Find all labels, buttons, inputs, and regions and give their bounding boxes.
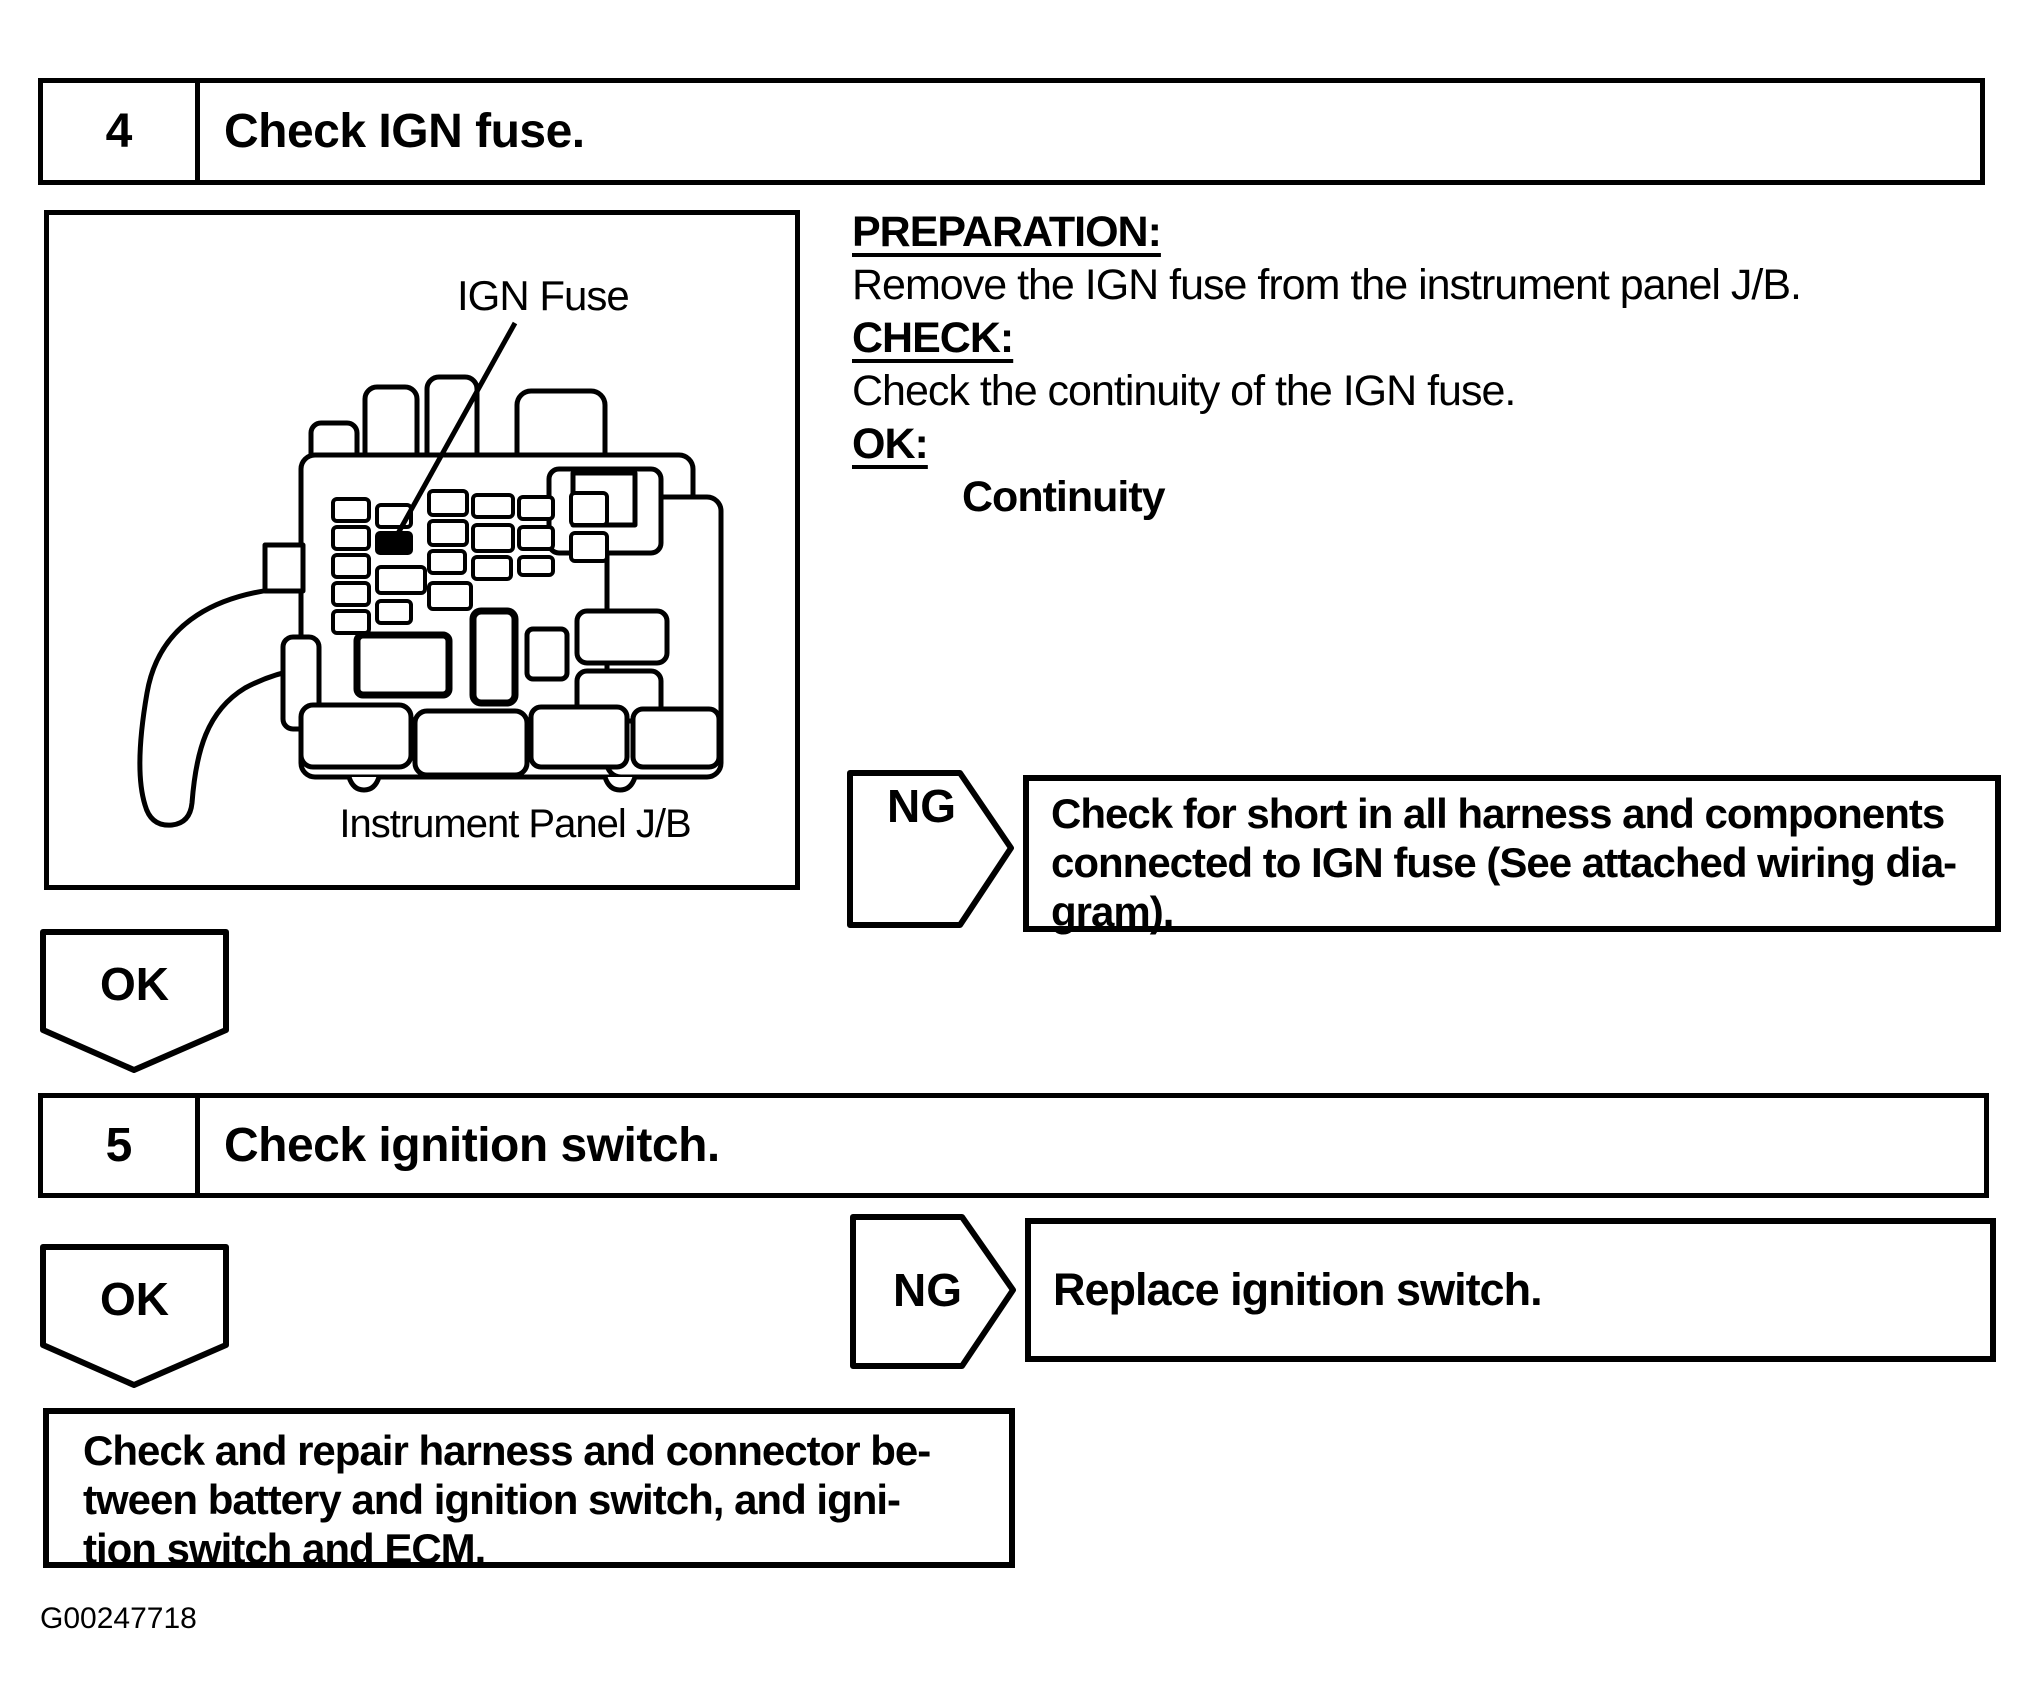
final-result-line: Check and repair harness and connector b… (83, 1426, 999, 1475)
step5-ok-arrow: OK (40, 1243, 230, 1389)
illustration-caption: Instrument Panel J/B (339, 802, 690, 846)
final-result-line: tion switch and ECM. (83, 1524, 999, 1573)
step4-ng-result-box: Check for short in all harness and compo… (1023, 775, 2001, 932)
side-lug (265, 545, 303, 591)
mount-foot (349, 777, 379, 790)
ok-condition-text: Continuity (962, 471, 2002, 524)
figure-id: G00247718 (40, 1602, 197, 1636)
step5-number: 5 (43, 1098, 200, 1193)
preparation-heading: PREPARATION: (852, 206, 2002, 259)
ng-result-line: Check for short in all harness and compo… (1051, 789, 1981, 838)
ng-result-text: Replace ignition switch. (1053, 1264, 1542, 1316)
ok-label: OK (100, 958, 169, 1010)
relay-block (473, 611, 515, 703)
check-text: Check the continuity of the IGN fuse. (852, 365, 2002, 418)
step5-title: Check ignition switch. (200, 1098, 720, 1193)
step4-number: 4 (43, 83, 200, 180)
harness-arm (140, 587, 301, 825)
final-result-line: tween battery and ignition switch, and i… (83, 1475, 999, 1524)
relay-block (357, 635, 449, 695)
step4-instructions: PREPARATION: Remove the IGN fuse from th… (852, 206, 2002, 524)
ign-fuse-highlight (377, 533, 411, 553)
step5-ng-arrow: NG (850, 1214, 1020, 1369)
service-manual-page: 4 Check IGN fuse. (0, 0, 2031, 1706)
junction-block-drawing: IGN Fuse Instrument Panel J/B (49, 215, 795, 885)
ok-label: OK (100, 1273, 169, 1325)
ign-fuse-label: IGN Fuse (457, 272, 629, 319)
final-result-box: Check and repair harness and connector b… (43, 1408, 1015, 1568)
ng-result-line: connected to IGN fuse (See attached wiri… (1051, 838, 1981, 887)
mount-foot (605, 777, 635, 790)
ng-label: NG (887, 780, 956, 832)
ng-label: NG (893, 1264, 962, 1316)
instrument-panel-illustration-box: IGN Fuse Instrument Panel J/B (44, 210, 800, 890)
ok-heading: OK: (852, 418, 2002, 471)
step4-header: 4 Check IGN fuse. (38, 78, 1985, 185)
step4-ng-arrow: NG (847, 770, 1017, 928)
step5-ng-result-box: Replace ignition switch. (1025, 1218, 1996, 1362)
ng-result-line: gram). (1051, 887, 1981, 936)
step4-title: Check IGN fuse. (200, 83, 585, 180)
step4-ok-arrow: OK (40, 928, 230, 1074)
check-heading: CHECK: (852, 312, 2002, 365)
step5-header: 5 Check ignition switch. (38, 1093, 1989, 1198)
preparation-text: Remove the IGN fuse from the instrument … (852, 259, 2002, 312)
